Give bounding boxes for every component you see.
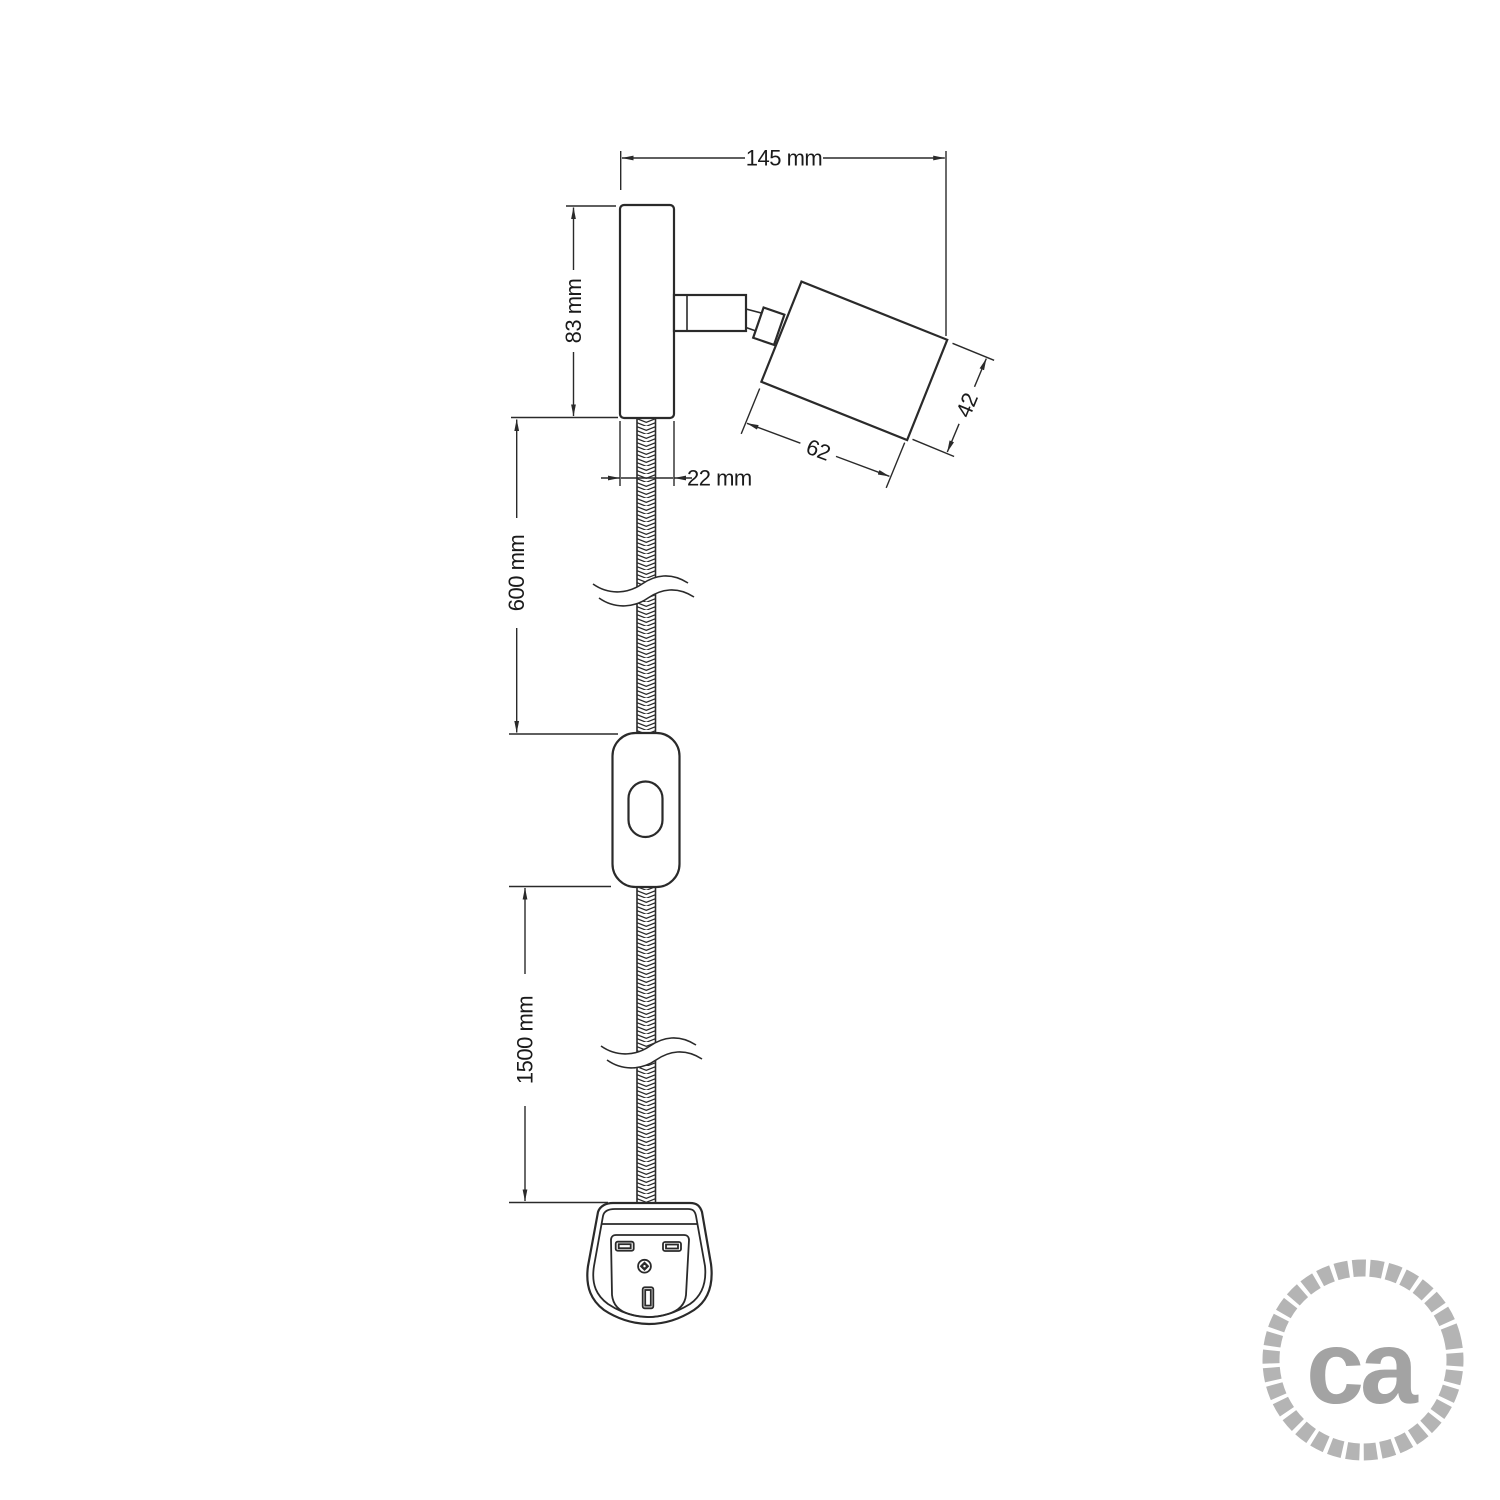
- dim-label-22mm: 22 mm: [687, 466, 752, 491]
- ext-line: [953, 343, 995, 360]
- dim-line: [975, 359, 987, 387]
- ext-line: [913, 439, 955, 456]
- dimension-diagram: 145 mm 83 mm 22 mm 62: [0, 0, 1500, 1500]
- brand-logo-text: ca: [1306, 1310, 1419, 1426]
- dim-label-83mm: 83 mm: [561, 279, 586, 344]
- joint-neck-top: [746, 309, 763, 314]
- dim-label-600mm: 600 mm: [504, 535, 529, 611]
- mounting-arm: [674, 295, 746, 331]
- dim-plate-height: 83 mm: [511, 206, 618, 418]
- dim-plate-width: 22 mm: [601, 421, 752, 491]
- technical-drawing-page: 145 mm 83 mm 22 mm 62: [0, 0, 1500, 1500]
- dimension-annotations: 145 mm 83 mm 22 mm 62: [504, 146, 994, 1203]
- wall-plate: [620, 205, 674, 418]
- dim-label-1500mm: 1500 mm: [513, 996, 538, 1084]
- spotlight-body-group: [761, 282, 947, 441]
- dim-label-145mm: 145 mm: [746, 146, 822, 171]
- uk-plug: [587, 1203, 711, 1324]
- switch-button: [629, 782, 663, 838]
- spotlight-body: [761, 282, 947, 441]
- inline-switch: [613, 733, 680, 887]
- dim-label-42: 42: [951, 389, 983, 421]
- plug-screw-dot: [643, 1265, 645, 1267]
- dim-line: [747, 423, 800, 443]
- dim-label-62: 62: [803, 434, 834, 466]
- dim-line: [947, 424, 959, 452]
- dim-line: [836, 456, 889, 476]
- brand-logo: ca: [1250, 1247, 1475, 1472]
- wall-spotlight-fixture: [620, 205, 947, 440]
- dim-upper-cable: 600 mm: [504, 420, 618, 735]
- dim-lower-cable: 1500 mm: [509, 887, 611, 1203]
- ext-line: [886, 443, 905, 488]
